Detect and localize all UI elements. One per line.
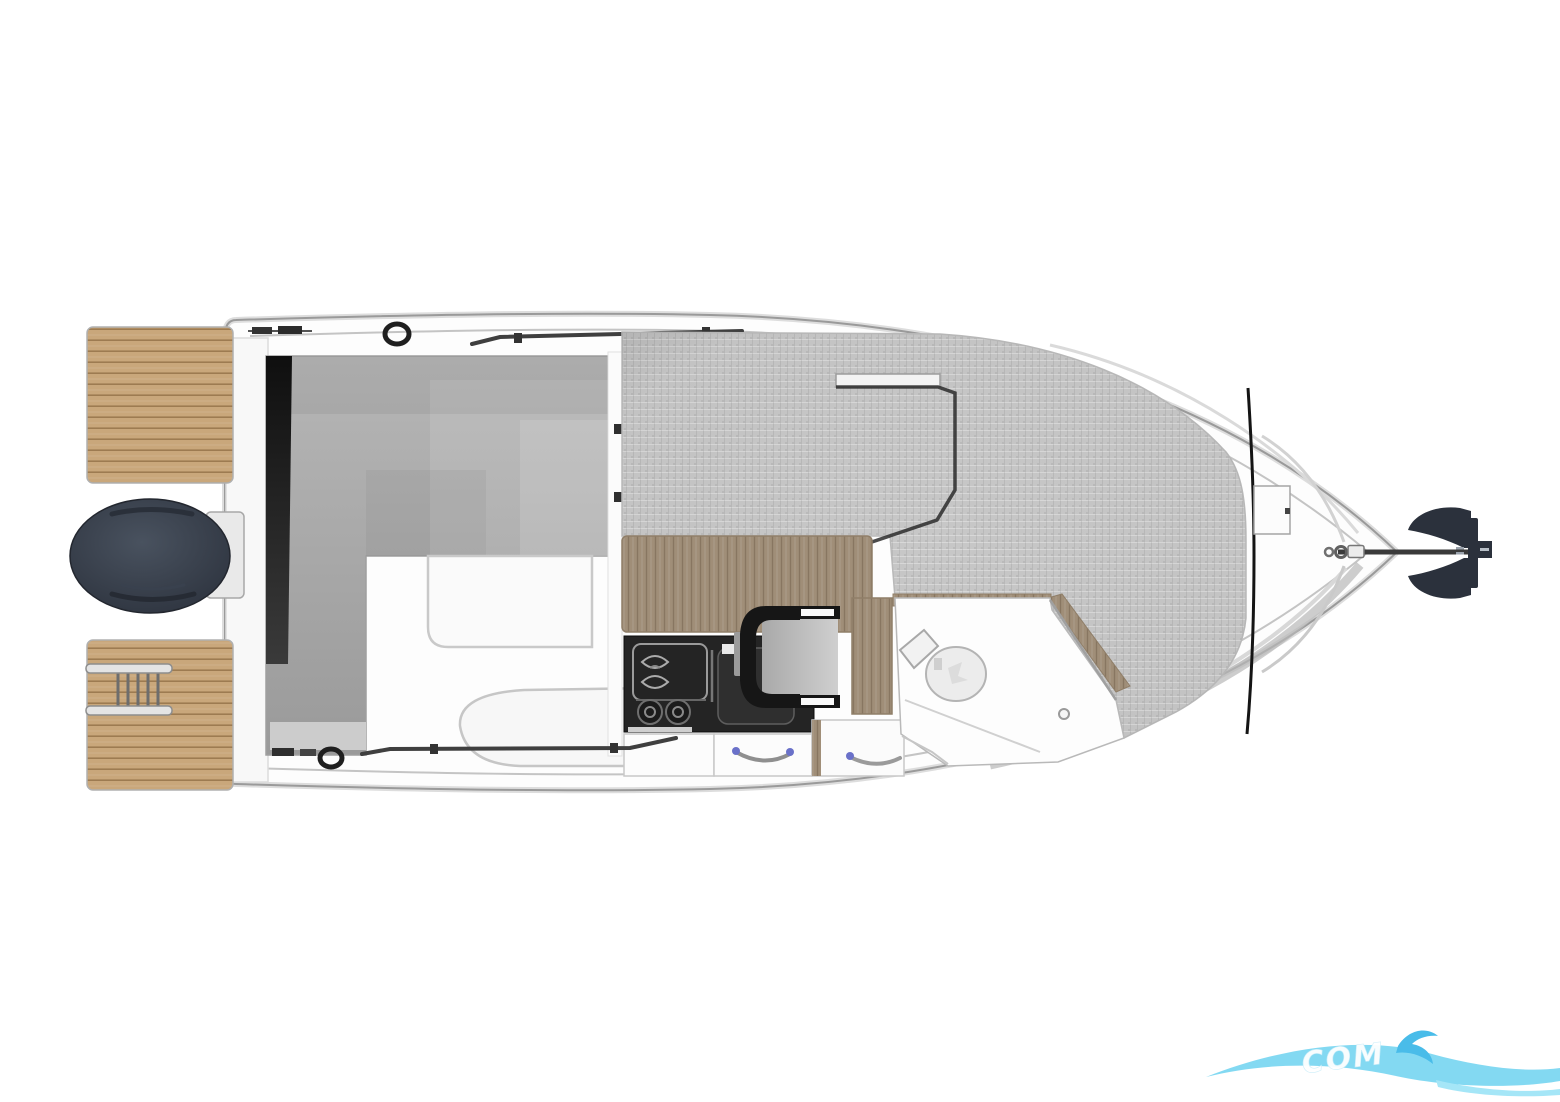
head-deck-fitting	[1059, 709, 1069, 719]
drawer-center	[714, 734, 812, 776]
berth-hatch-step	[836, 374, 940, 387]
anchor-swivel	[1348, 546, 1364, 558]
helm-seat-cushion	[762, 614, 838, 700]
anchor-fluke-top	[1408, 507, 1471, 548]
drawer-right-cabinet	[812, 720, 904, 776]
anchor-locker	[1254, 486, 1290, 534]
anchor-fluke-bottom	[1408, 558, 1471, 599]
settee-side-panel	[266, 356, 292, 664]
bulkhead-latch-top	[614, 424, 622, 434]
watermark: COM	[1206, 1031, 1560, 1097]
outboard-engine	[70, 499, 244, 613]
galley-cabinet-side	[852, 598, 892, 714]
swim-platform-port	[87, 327, 233, 483]
stern-cleat-port	[252, 327, 272, 334]
watermark-text: COM	[1300, 1036, 1387, 1081]
boat-floorplan-drawing: COM	[0, 0, 1560, 1102]
cockpit-floor-panel	[428, 556, 592, 647]
stern-area	[70, 327, 268, 790]
bulkhead-latch-bottom	[614, 492, 622, 502]
boat-floorplan-canvas: COM	[0, 0, 1560, 1102]
cabin-bulkhead-strip	[608, 352, 622, 756]
stern-cleat-starboard	[272, 748, 294, 756]
engine-cowling	[70, 499, 230, 613]
helm-seat	[734, 606, 840, 708]
